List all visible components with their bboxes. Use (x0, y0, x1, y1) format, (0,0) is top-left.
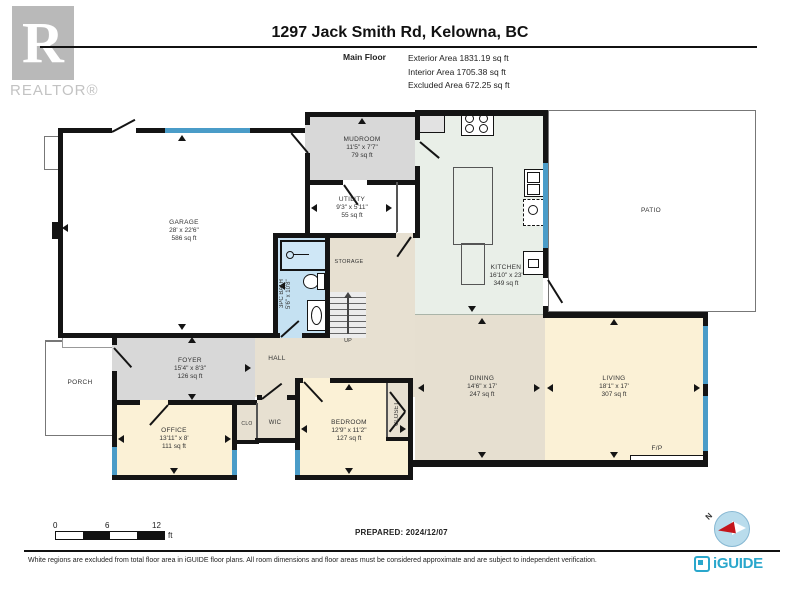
scale-tick-0: 0 (53, 521, 57, 530)
clo-label: CLO (241, 420, 252, 428)
closet-label: CLOSET (394, 390, 401, 438)
bedroom-window (295, 450, 300, 475)
utility-label: UTILITY9'3" x 5'11"55 sq ft (336, 196, 368, 220)
kitchen-label: KITCHEN16'10" x 23'349 sq ft (489, 264, 522, 288)
kitchen-sink-icon (524, 169, 544, 197)
garage-window (165, 128, 250, 133)
iguide-logo-icon (694, 556, 710, 572)
wic-label: WIC (269, 419, 282, 427)
office-left-window (112, 447, 117, 475)
stairs-up-arrow (344, 292, 352, 298)
bedroom-label: BEDROOM12'9" x 11'2"127 sq ft (331, 419, 367, 443)
toilet-tank (317, 273, 325, 290)
fireplace-label: F/P (651, 445, 662, 453)
compass-icon: N (714, 511, 750, 547)
garage-label: GARAGE28' x 22'6"586 sq ft (169, 219, 199, 243)
floorplan-page: R REALTOR® 1297 Jack Smith Rd, Kelowna, … (0, 0, 800, 600)
kitchen-dining-boundary (415, 314, 545, 315)
storage-label: STORAGE (335, 258, 364, 266)
bath-label: 3PC BATH5'6" x 10'8" (279, 258, 293, 330)
prepared-date: PREPARED: 2024/12/07 (355, 528, 448, 537)
stairs-direction-line (347, 296, 349, 334)
hall-label: HALL (268, 355, 285, 363)
living-window-lower (703, 396, 708, 451)
mudroom-label: MUDROOM11'5" x 7'7"79 sq ft (343, 136, 380, 160)
room-porch (45, 340, 114, 436)
scale-tick-12: 12 (152, 521, 161, 530)
exterior-alcove (237, 444, 295, 480)
office-right-window (232, 450, 237, 475)
patio-label: PATIO (641, 207, 661, 215)
scale-bar (55, 531, 165, 540)
kitchen-island-extension (461, 243, 485, 285)
kitchen-window (543, 163, 548, 248)
dining-label: DINING14'6" x 17'247 sq ft (467, 375, 497, 399)
footer-divider (24, 550, 780, 552)
scale-unit: ft (168, 531, 172, 540)
living-label: LIVING18'1" x 17'307 sq ft (599, 375, 629, 399)
scale-tick-6: 6 (105, 521, 109, 530)
dishwasher-icon (523, 199, 544, 226)
living-window-upper (703, 326, 708, 384)
footer-disclaimer: White regions are excluded from total fl… (28, 557, 597, 564)
porch-label: PORCH (68, 379, 93, 387)
iguide-logo: iGUIDE (694, 555, 763, 572)
foyer-label: FOYER15'4" x 8'3"126 sq ft (174, 357, 206, 381)
wall-oven-icon (523, 251, 544, 275)
room-corridor (366, 236, 415, 333)
kitchen-island (453, 167, 493, 245)
floorplan-canvas: GARAGE28' x 22'6"586 sq ft MUDROOM11'5" … (0, 0, 800, 520)
office-label: OFFICE13'11" x 8'111 sq ft (159, 427, 188, 451)
bath-sink-icon (307, 300, 326, 331)
iguide-logo-text: iGUIDE (713, 555, 763, 572)
stairs-up-label: UP (344, 337, 352, 345)
